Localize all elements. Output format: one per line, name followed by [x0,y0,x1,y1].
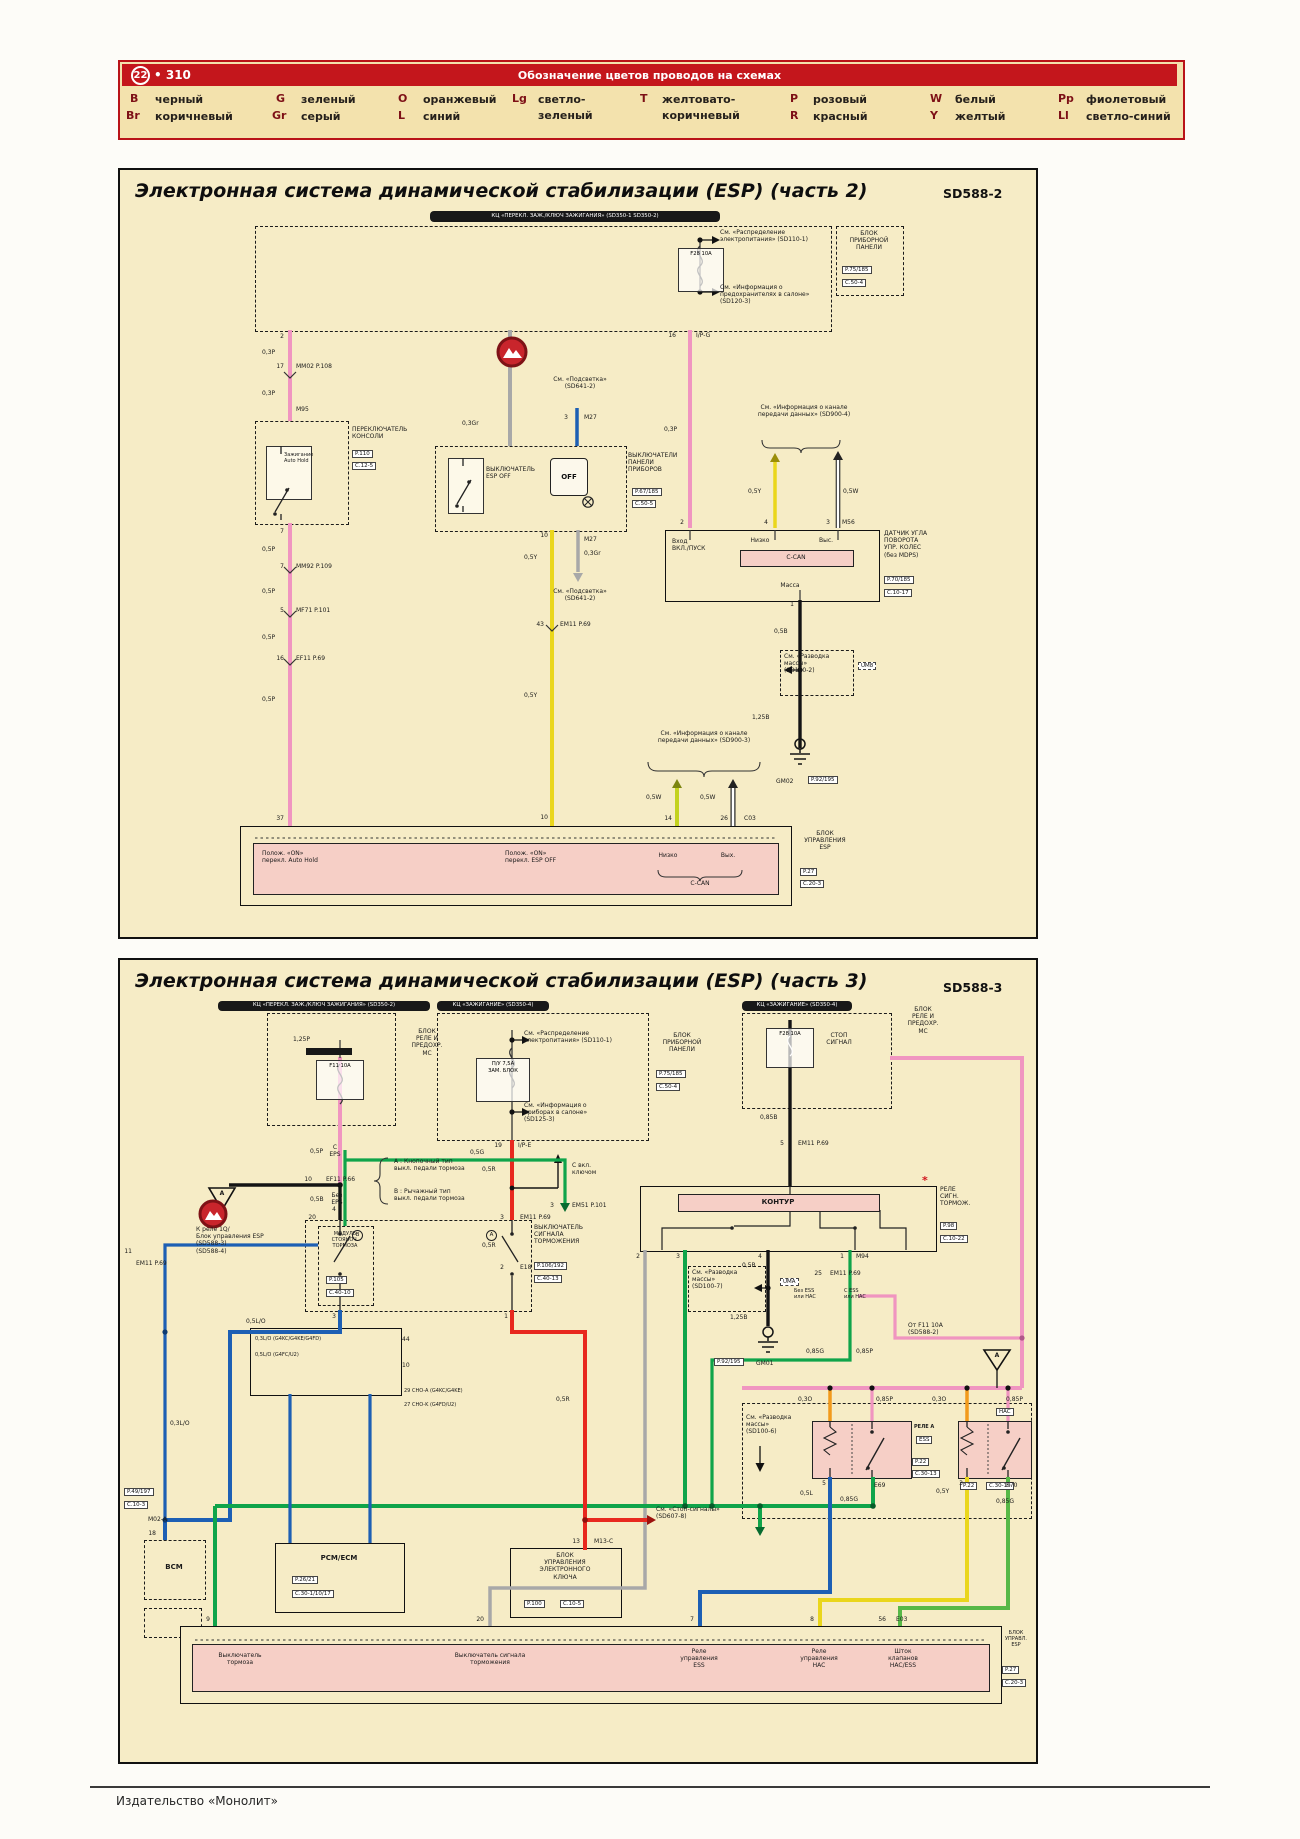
cluster-page-tag: P.75/185 [656,1070,686,1078]
header-bar: 22 • 310 Обозначение цветов проводов на … [122,64,1177,86]
fuse-f11: F11 10A [316,1060,364,1100]
wire-label: 0,5R [482,1166,508,1173]
wire-label: 1,25B [752,714,782,721]
m02a-page-tag: P.49/197 [124,1488,154,1496]
pcm-label: PCM/ECM [285,1554,393,1562]
variant-label: Без ESS или HAC [794,1288,834,1300]
see-can-ref: См. «Информация о канале передачи данных… [726,404,882,418]
sensor-text: C-CAN [740,554,852,561]
connector-label: M95 [296,406,326,413]
wire-label: 0,5L [800,1490,826,1497]
connector-label: C03 [744,815,766,822]
esp-unit-text: Вых. [714,852,742,859]
see-light-ref: См. «Подсветка» (SD641-2) [544,588,616,602]
brakelight-relay-label: РЕЛЕ СИГН. ТОРМОЖ. [940,1186,1000,1208]
fuse-pu: П/У 7,5А ЗАМ. БЛОК [476,1058,530,1102]
connector-label: EF11 P.66 [326,1176,382,1183]
sensor-page-tag: P.70/185 [884,576,914,584]
asterisk-mark: * [922,1174,928,1187]
see-cabin-ref: См. «Информация о приборах в салоне» (SD… [524,1102,642,1124]
variant-label: С вкл. ключом [572,1162,614,1176]
esp-unit-text: Реле управления ESS [668,1648,730,1670]
legend-code: B [130,92,138,105]
pin: 2 [270,333,284,340]
diagram1-title: Электронная система динамической стабили… [135,180,867,202]
wire-label: 0,5P [262,546,286,553]
wire-label: 0,85G [840,1496,872,1503]
legend-code: Pp [1058,92,1074,105]
pin: 4 [756,519,768,526]
legend-name: серый [301,109,341,125]
legend-code: Br [126,109,140,122]
connector-label: E70 [1006,1482,1030,1489]
wire-label: 0,5P [262,696,286,703]
connector-label: MM02 P.108 [296,363,360,370]
pin: 20 [468,1616,484,1623]
wire-label: 0,3P [664,426,690,433]
espoff-right-label: ВЫКЛЮЧАТЕЛИ ПАНЕЛИ ПРИБОРОВ [628,452,712,474]
pin: 10 [402,1362,418,1369]
esp-unit-text: Выключатель тормоза [200,1652,280,1666]
diagram2-code: SD588-3 [943,980,1002,995]
connector-label: 29 CHO-A (G4KC/G4KE) [404,1388,496,1394]
connector-label: MM92 P.109 [296,563,360,570]
wire-label: 0,5G [470,1149,496,1156]
wire-label: 0,5P [262,634,286,641]
pin: 26 [714,815,728,822]
legend-code: Gr [272,109,286,122]
wire-label: 0,85G [996,1498,1028,1505]
legend-name: светло-синий [1086,109,1171,125]
pin: 2 [672,519,684,526]
pin: 7 [272,563,284,570]
m02a-conn-tag: C.10-3 [124,1501,148,1509]
sensor-text: Вход ВКЛ./ПУСК [672,538,724,552]
pin: 3 [668,1253,680,1260]
fuse-f28: F28 10A [678,248,724,292]
wire-label: 0,5W [646,794,672,801]
pin: 2 [628,1253,640,1260]
cluster-conn-tag: C.50-4 [656,1083,680,1091]
legend-code: T [640,92,648,105]
key-conn-tag: C.10-5 [560,1600,584,1608]
pin: 10 [296,1176,312,1183]
connector-label: EM11 P.69 [798,1140,856,1147]
legend-code: Lg [512,92,527,105]
pin: 13 [566,1538,580,1545]
see-stop-ref: См. «Стоп-сигналы» (SD607-8) [656,1506,738,1520]
pin: 3 [951,1480,963,1487]
connector-label: M27 [584,414,614,421]
publisher: Издательство «Монолит» [116,1794,278,1808]
legend-name: розовый [813,92,867,108]
key-page-tag: P.100 [524,1600,545,1608]
pin: 3 [492,1214,504,1221]
console-page-tag: P.110 [352,450,373,458]
wire-label: 0,5W [700,794,726,801]
pin: 3 [556,414,568,421]
pin: 5 [772,1140,784,1147]
pin: 1 [496,1313,508,1320]
sensor-text: Масса [768,582,812,589]
to-relay-ref: К реле 1Q/ Блок управления ESP (SD588-3)… [196,1226,292,1255]
hac-tag: HAC [996,1408,1014,1416]
brelay-conn-tag: C.10-22 [940,1235,968,1243]
pin: 16 [662,332,676,339]
wire-label: 0,85P [856,1348,888,1355]
note-b: В : Рычажный тип выкл. педали тормоза [394,1188,514,1202]
pcm-conn-tag: C.30-1/10/17 [292,1590,334,1598]
pin: 9 [198,1616,210,1623]
harness-stub-bar [306,1048,352,1055]
pin: 7 [272,528,284,535]
legend-name: оранжевый [423,92,496,108]
wire-label: 0,85G [806,1348,838,1355]
esp-unit-text: Полож. «ON» перекл. ESP OFF [505,850,600,864]
pin: 5 [272,607,284,614]
harness-bar: КЦ «ЗАЖИГАНИЕ» (SD350-4) [742,1001,852,1011]
m02a-text: 0,5L/О (G4FC/U2) [255,1352,397,1358]
connector-label: E69 [874,1482,896,1489]
sensor-text: Низко [744,537,776,544]
harness-bar: КЦ «ЗАЖИГАНИЕ» (SD350-4) [437,1001,549,1011]
cluster-page-tag: P.75/185 [842,266,872,274]
ground-label: GM01 [756,1360,784,1367]
wire-label: 0,3P [262,349,286,356]
wire-label: 0,85B [760,1114,790,1121]
pin: 2 [492,1264,504,1271]
header-title: Обозначение цветов проводов на схемах [122,69,1177,82]
connector-label: M27 [584,536,614,543]
legend-name: черный [155,92,203,108]
connector-label: M13-C [594,1538,634,1545]
connector-label: EM11 P.69 [520,1214,580,1221]
connector-label: M02-A [148,1516,184,1523]
wire-label: 1,25P [293,1036,323,1043]
legend-name: белый [955,92,996,108]
legend-code: Y [930,109,938,122]
connector-label: EM11 P.69 [136,1260,194,1267]
espoff-page-tag: P.67/185 [632,488,662,496]
legend-name: желтый [955,109,1006,125]
ground-dist-label: См. «Разводка массы» (SD100-2) [784,653,846,675]
cluster-label: БЛОК ПРИБОРНОЙ ПАНЕЛИ [650,1032,714,1054]
see-power-ref: См. «Распределение электропитания» (SD11… [524,1030,642,1044]
legend-code: P [790,92,798,105]
pin: 3 [324,1313,336,1320]
wire-label: 0,85P [876,1396,908,1403]
connector-label: M94 [856,1253,884,1260]
connector-label: EM11 P.69 [560,621,620,628]
uma-connector: UMA [780,1278,799,1286]
footer-divider [90,1786,1210,1788]
pin: 5 [814,1480,826,1487]
pin: 1 [782,601,794,608]
legend-name: зеленый [301,92,356,108]
wire-label: 1,25B [730,1314,760,1321]
esp-unit-page-tag: P.27 [800,868,817,876]
pin: 10 [534,532,548,539]
legend-name: красный [813,109,868,125]
fuse-f28-2: F28 10A [766,1028,814,1068]
pin: 25 [806,1270,822,1277]
esp-unit-text: C-CAN [680,880,720,887]
smart-key-unit-label: БЛОК УПРАВЛЕНИЯ ЭЛЕКТРОННОГО КЛЮЧА [512,1552,618,1581]
pin: 10 [534,814,548,821]
legend-name: коричневый [155,109,233,125]
variant-label: С ESS или HAC [844,1288,882,1300]
ess-conn-tag: C.30-13 [912,1470,940,1478]
esp-unit-text: Низко [652,852,684,859]
pin: 18 [144,1530,156,1537]
wire-label: 0,5Y [524,554,550,561]
see-can-ref: См. «Информация о канале передачи данных… [612,730,796,744]
connector-label: I/P-G [696,332,728,339]
harness-bar: КЦ «ПЕРЕКЛ. ЗАЖ./КЛЮЧ ЗАЖИГАНИЯ» (SD350-… [430,211,720,222]
connector-label: E03 [896,1616,920,1623]
from-f11-ref: От F11 10A (SD588-2) [908,1322,978,1336]
m02a-text: 0,3L/О (G4KC/G4KE/G4FD) [255,1336,397,1342]
connector-label: EM11 P.69 [830,1270,888,1277]
cluster-conn-tag: C.50-4 [842,279,866,287]
wire-label: 0,5W [843,488,869,495]
pin: 56 [868,1616,886,1623]
legend-code: Ll [1058,109,1069,122]
wire-label: 0,3O [798,1396,824,1403]
sensor-conn-tag: C.10-17 [884,589,912,597]
esp-unit-label: БЛОК УПРАВЛ. ESP [1000,1630,1032,1648]
cluster-label: БЛОК ПРИБОРНОЙ ПАНЕЛИ [838,230,900,252]
wire-label: 0,3L/О [170,1420,202,1427]
wire-label: 0,3Gr [584,550,612,557]
stop-signal-label: СТОП СИГНАЛ [816,1032,862,1046]
pin: 37 [268,815,284,822]
connector-label: EF11 P.69 [296,655,356,662]
module-page-tag: P.105 [326,1276,347,1284]
ess-tag: ESS [916,1436,932,1444]
variant-label: С EPS [322,1144,348,1158]
esp-unit-text: Шток клапанов HAC/ESS [872,1648,934,1670]
esp-off-icon: OFF [550,458,588,496]
stop-fuse-box [742,1013,892,1109]
circle-letter-a: А [486,1230,497,1241]
pin: 1 [832,1253,844,1260]
um8-connector: UM8 [858,662,876,670]
wire-label: 0,5Y [936,1488,962,1495]
legend-code: G [276,92,285,105]
pin: 3 [542,1202,554,1209]
esp-unit-text: Выключатель сигнала торможения [428,1652,552,1666]
wire-label: 0,5Y [748,488,774,495]
pcm-page-tag: P.26/21 [292,1576,318,1584]
wire-label: 0,85P [1006,1396,1032,1403]
harness-bar: КЦ «ПЕРЕКЛ. ЗАЖ./КЛЮЧ ЗАЖИГАНИЯ» (SD350-… [218,1001,430,1011]
triangle-a-letter: A [210,1190,234,1197]
parkbrake-module-label: МОДУЛЬ СТОЯНОЧ. ТОРМОЗА [319,1231,371,1249]
legend-code: O [398,92,407,105]
ess-page-tag: P.22 [912,1458,929,1466]
ess-relay-label: РЕЛЕ А [914,1424,956,1430]
ground-dist-label: См. «Разводка массы» (SD100-7) [692,1269,758,1291]
pin: 4 [750,1253,762,1260]
legend-code: L [398,109,405,122]
legend-name: фиолетовый [1086,92,1166,108]
brake-page-tag: P.106/192 [534,1262,567,1270]
console-switch-label: ПЕРЕКЛЮЧАТЕЛЬ КОНСОЛИ [352,426,436,440]
module-conn-tag: C.40-10 [326,1289,354,1297]
see-fuses-ref: См. «Информация о предохранителях в сало… [720,284,840,306]
sensor-label: ДАТЧИК УГЛА ПОВОРОТА УПР. КОЛЕС (без MDP… [884,530,956,559]
espoff-switch-inner [448,458,484,514]
brelay-page-tag: P.98 [940,1222,957,1230]
pin: 8 [802,1616,814,1623]
ground-page-tag: P.92/195 [808,776,838,784]
pin: 17 [268,363,284,370]
hac-relay [958,1421,1032,1479]
esp-unit-text: Реле управления HAC [788,1648,850,1670]
variant-label: Без EPS [322,1192,352,1206]
wire-label: 0,3O [932,1396,958,1403]
manual-page: 22 • 310 Обозначение цветов проводов на … [0,0,1300,1839]
brake-conn-tag: C.40-13 [534,1275,562,1283]
see-power-ref: См. «Распределение электропитания» (SD11… [720,229,834,243]
brake-switch-label: ВЫКЛЮЧАТЕЛЬ СИГНАЛА ТОРМОЖЕНИЯ [534,1224,620,1246]
wire-label: 0,5R [556,1396,582,1403]
ground-dist-label: См. «Разводка массы» (SD100-6) [746,1414,812,1436]
esp-unit-conn-tag: C.20-3 [800,880,824,888]
wire-label: 0,5L/О [246,1318,278,1325]
pin: 3 [818,519,830,526]
esp-unit-page-tag: P.27 [1002,1666,1019,1674]
wire-label: 0,5Y [524,692,550,699]
pin: 7 [682,1616,694,1623]
sensor-text: Выс. [812,537,840,544]
wire-label: 0,5R [482,1242,508,1249]
legend-name: синий [423,109,460,125]
espoff-switch-label: ВЫКЛЮЧАТЕЛЬ ESP OFF [486,466,546,480]
legend-name: желтовато- коричневый [662,92,740,124]
wire-label: 0,3Gr [462,420,490,427]
wire-label: 0,3P [262,390,286,397]
pin: 14 [658,815,672,822]
pin: 4 [324,1206,336,1213]
fuseblock-label: БЛОК РЕЛЕ И ПРЕДОХР. МС [396,1028,458,1057]
ground-label: GM02 [776,778,804,785]
esp-unit-inner [192,1644,990,1692]
wire-label: 0,5B [774,628,800,635]
console-switch-text: Зажигание Auto Hold [284,452,324,464]
diagram1-code: SD588-2 [943,186,1002,201]
ground-page-tag: P.92/195 [714,1358,744,1366]
legend-code: W [930,92,942,105]
pin: 16 [266,655,284,662]
diagram2-title: Электронная система динамической стабили… [135,970,867,992]
connector-label: I/P-E [518,1142,548,1149]
ess-relay [812,1421,912,1479]
connector-label: EM51 P.101 [572,1202,632,1209]
bcm-label: BCM [146,1563,202,1571]
esp-unit-text: Полож. «ON» перекл. Auto Hold [262,850,357,864]
pin: 44 [402,1336,418,1343]
esp-unit-label: БЛОК УПРАВЛЕНИЯ ESP [794,830,856,852]
connector-label: 27 CHO-K (G4FD/U2) [404,1402,496,1408]
connector-label: MF71 P.101 [296,607,360,614]
triangle-a-letter: A [986,1352,1008,1359]
espoff-conn-tag: C.50-5 [632,500,656,508]
legend-code: R [790,109,798,122]
kontur-label: КОНТУР [678,1198,878,1206]
pin: 11 [118,1248,132,1255]
connector-label: M56 [842,519,868,526]
see-light-ref: См. «Подсветка» (SD641-2) [544,376,616,390]
fuseblock-label: БЛОК РЕЛЕ И ПРЕДОХР. МС [892,1006,954,1035]
pin: 43 [528,621,544,628]
console-conn-tag: C.12-5 [352,462,376,470]
esp-unit-conn-tag: C.20-3 [1002,1679,1026,1687]
wire-label: 0,5P [262,588,286,595]
legend-name: светло- зеленый [538,92,593,124]
pin: 20 [300,1214,316,1221]
